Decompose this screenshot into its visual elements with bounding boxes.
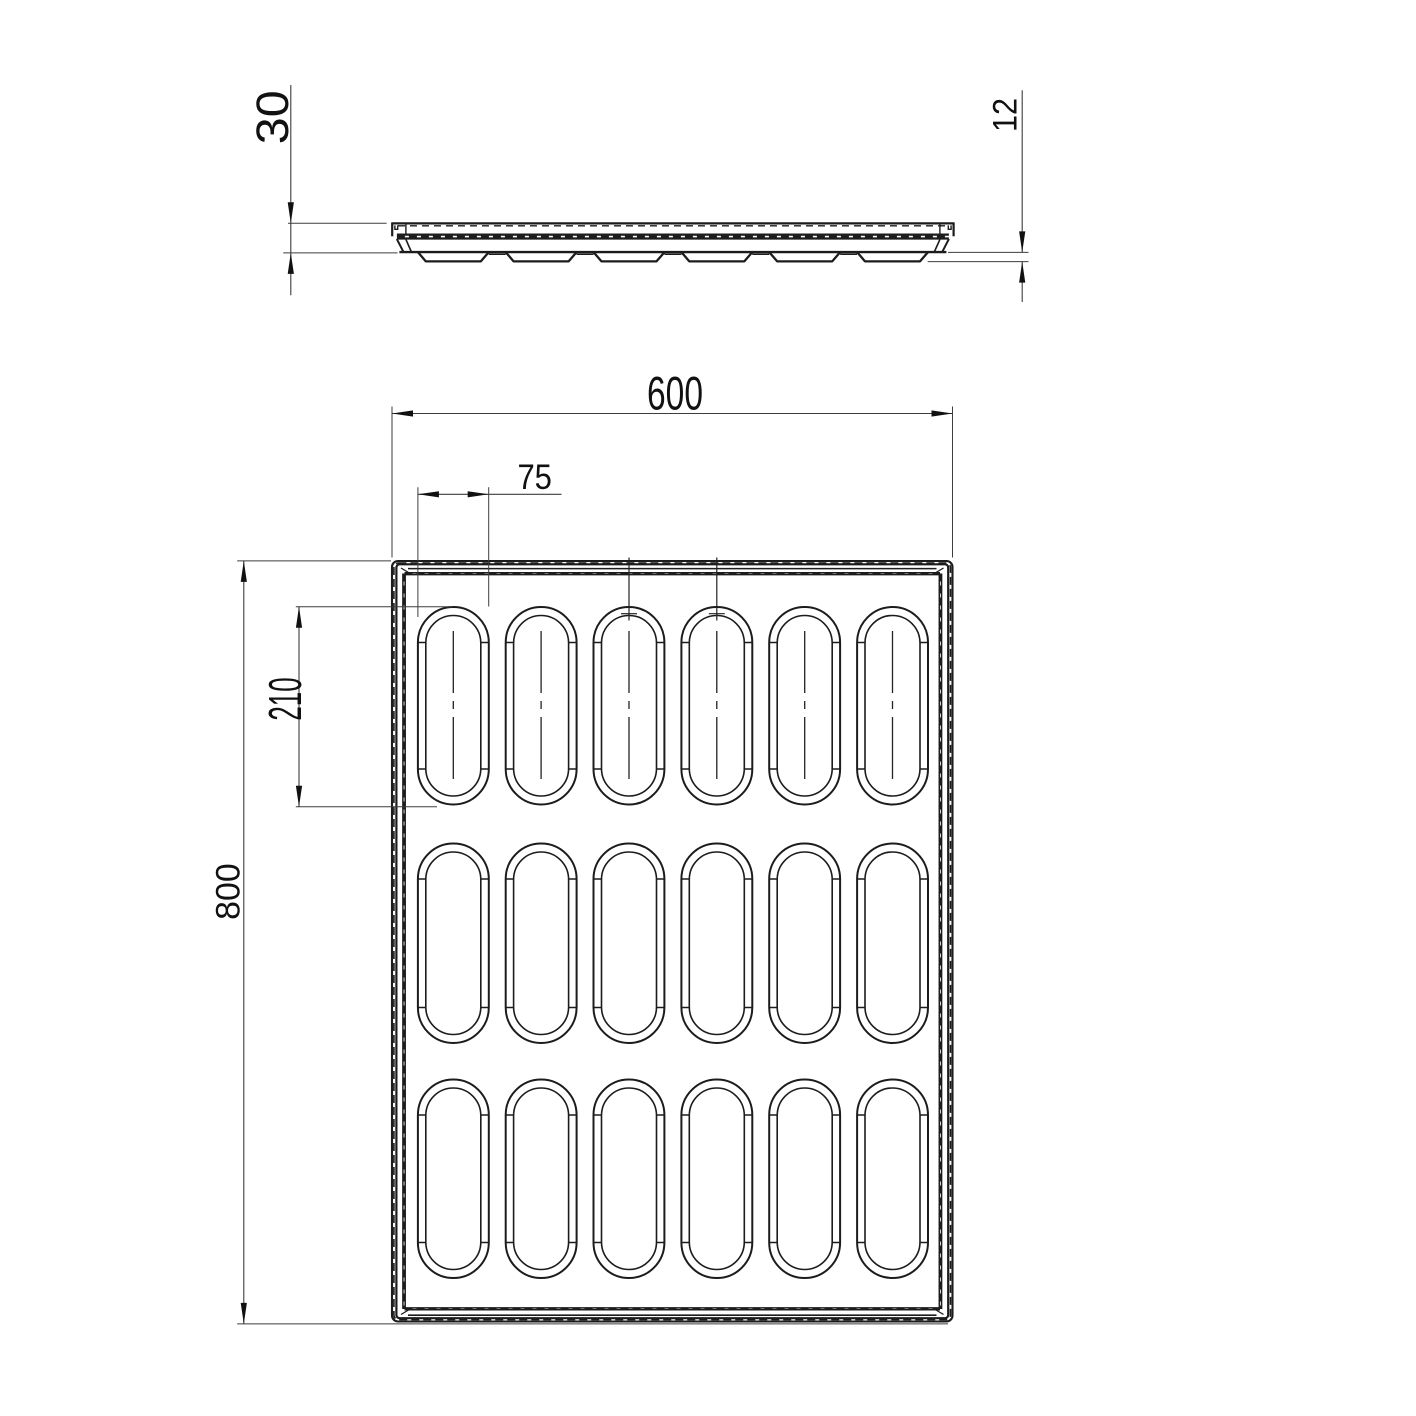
svg-text:30: 30 xyxy=(247,90,298,144)
svg-text:75: 75 xyxy=(517,458,552,497)
svg-text:600: 600 xyxy=(647,368,703,421)
svg-text:12: 12 xyxy=(986,98,1024,132)
svg-text:210: 210 xyxy=(259,677,311,720)
svg-text:800: 800 xyxy=(209,863,247,920)
